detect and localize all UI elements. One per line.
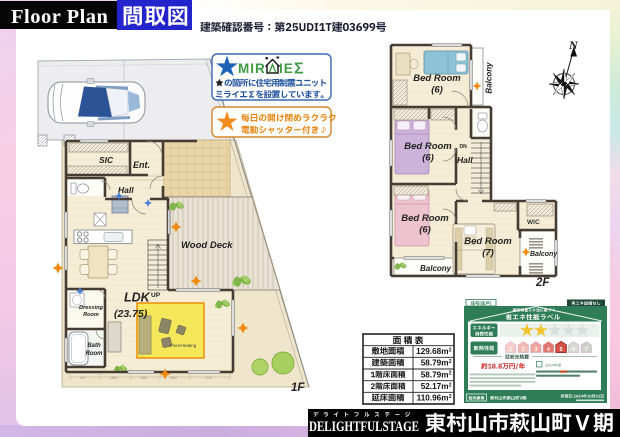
svg-text:WIC: WIC — [527, 219, 540, 226]
svg-text:Σ: Σ — [294, 61, 304, 78]
svg-text:129.68m: 129.68m — [416, 347, 448, 356]
svg-text:LDK: LDK — [124, 291, 151, 305]
svg-text:3: 3 — [534, 347, 537, 353]
svg-text:52.17m: 52.17m — [421, 382, 449, 391]
svg-text:Floor Plan: Floor Plan — [11, 6, 109, 28]
svg-text:Balcony: Balcony — [530, 251, 558, 258]
svg-text:Bed Room: Bed Room — [464, 236, 512, 247]
svg-text:Bath: Bath — [87, 343, 101, 349]
svg-text:Balcony: Balcony — [420, 264, 452, 273]
svg-text:110.96m: 110.96m — [417, 394, 449, 403]
svg-text:2: 2 — [449, 382, 452, 388]
svg-text:1820: 1820 — [110, 376, 117, 380]
svg-text:2: 2 — [522, 347, 525, 353]
svg-text:(7): (7) — [482, 248, 494, 259]
svg-text:2: 2 — [449, 371, 452, 377]
svg-text:1820: 1820 — [170, 376, 177, 380]
svg-text:58.79m: 58.79m — [421, 370, 449, 379]
svg-text:Wood Deck: Wood Deck — [181, 240, 233, 251]
svg-text:(6): (6) — [419, 225, 431, 236]
svg-text:(6): (6) — [431, 85, 443, 96]
svg-text:Dressing: Dressing — [79, 305, 104, 311]
svg-text:(23.75): (23.75) — [114, 308, 148, 320]
svg-text:2: 2 — [449, 394, 452, 400]
svg-text:Bed Room: Bed Room — [413, 73, 461, 84]
svg-text:4: 4 — [547, 347, 550, 353]
svg-text:Room: Room — [86, 351, 104, 357]
svg-text:(6): (6) — [422, 153, 434, 164]
svg-text:SIC: SIC — [99, 155, 114, 165]
svg-text:2: 2 — [449, 347, 452, 353]
svg-text:910: 910 — [80, 376, 86, 380]
svg-text:IE: IE — [279, 61, 294, 76]
svg-text:Room: Room — [83, 312, 99, 318]
svg-text:2F: 2F — [535, 277, 550, 289]
svg-text:6: 6 — [572, 347, 575, 353]
svg-text:Hall: Hall — [457, 155, 473, 165]
svg-text:FloorHeating: FloorHeating — [170, 343, 197, 348]
svg-text:Balcony: Balcony — [485, 62, 494, 94]
svg-text:1F: 1F — [291, 382, 305, 394]
svg-text:Hall: Hall — [118, 185, 134, 195]
svg-text:2730: 2730 — [205, 376, 212, 380]
svg-text:1: 1 — [509, 347, 512, 353]
svg-text:DN: DN — [460, 144, 468, 150]
svg-text:Ent.: Ent. — [133, 160, 150, 170]
svg-text:UP: UP — [151, 292, 161, 299]
svg-text:58.79m: 58.79m — [421, 359, 449, 368]
svg-text:1820: 1820 — [140, 376, 147, 380]
svg-text:5: 5 — [560, 347, 563, 353]
svg-text:7: 7 — [585, 347, 588, 353]
svg-text:MIR: MIR — [238, 61, 266, 76]
svg-text:2: 2 — [449, 359, 452, 365]
svg-text:DELIGHTFULSTAGE: DELIGHTFULSTAGE — [309, 419, 419, 435]
svg-text:Bed Room: Bed Room — [401, 213, 449, 224]
svg-text:Bed Room: Bed Room — [404, 141, 452, 152]
svg-text:N: N — [568, 38, 579, 52]
